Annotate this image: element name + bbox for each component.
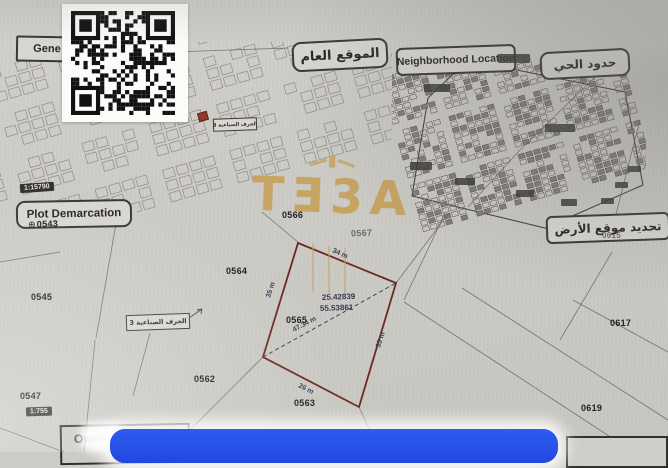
map-tag-jurf3-flag: الجرف الصناعية 3 [126, 313, 191, 331]
plot-latitude: 25.42839 [322, 292, 356, 302]
parcel-label-0564: 0564 [226, 266, 247, 276]
parcel-label-0563: 0563 [294, 398, 315, 408]
scale-badge-demarcation: 1:755 [26, 407, 52, 417]
parcel-label-0547: 0547 [20, 391, 41, 401]
parcel-label-0615: 0615 [602, 231, 621, 240]
qr-code-icon [71, 11, 179, 115]
edge-left-label: 35 m [265, 281, 277, 298]
edge-right-label: 35 m [375, 331, 386, 348]
bottom-right-box [566, 436, 668, 468]
district-borders-box-ar: حدود الحي [539, 48, 630, 81]
qr-code-panel [62, 4, 188, 122]
parcel-label-0545: 0545 [31, 292, 52, 302]
map-tag [498, 54, 530, 63]
parcel-label-0567: 0567 [351, 227, 373, 238]
parcel-label-0566: 0566 [282, 210, 303, 220]
map-tag [455, 178, 475, 185]
parcel-label-0617: 0617 [610, 318, 631, 328]
map-tag-jurf3-general: الجرف الصناعية 3 [213, 117, 257, 132]
parcel-label-0619: 0619 [581, 403, 602, 413]
benchmark-icon: ⊕ [28, 219, 36, 229]
map-tag [410, 162, 432, 170]
edge-bottom-label: 26 m [297, 383, 314, 396]
parcel-label-0565: 0565 [286, 315, 307, 325]
map-tag [516, 190, 534, 197]
map-tag [601, 198, 614, 204]
map-tag [615, 182, 628, 188]
map-tag [545, 124, 575, 132]
plot-longitude: 55.53861 [320, 303, 354, 313]
map-tag [424, 84, 450, 92]
privacy-overlay-button[interactable] [110, 429, 558, 463]
parcel-label-0543: ⊕0543 [28, 218, 58, 230]
map-tag [628, 166, 641, 172]
general-location-box-ar: الموقع العام [291, 38, 388, 73]
map-tag [561, 199, 577, 206]
parcel-label-0562: 0562 [194, 374, 215, 384]
